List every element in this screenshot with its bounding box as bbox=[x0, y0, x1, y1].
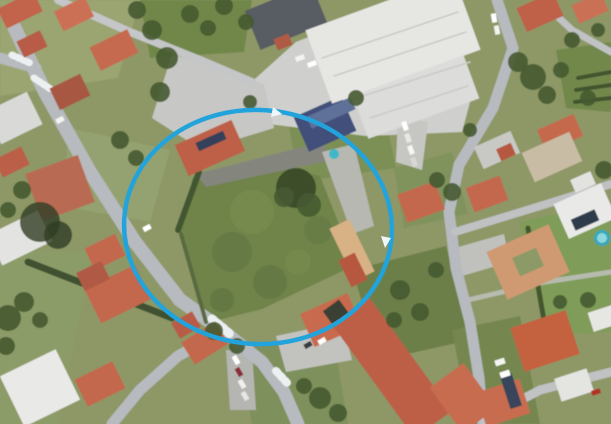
tree bbox=[429, 172, 445, 188]
tree bbox=[553, 295, 567, 309]
tree bbox=[0, 202, 16, 218]
imagery-layer bbox=[0, 0, 611, 424]
tree bbox=[13, 181, 31, 199]
tree bbox=[274, 187, 294, 207]
field-texture bbox=[285, 249, 311, 275]
tree bbox=[238, 14, 254, 30]
tree bbox=[580, 292, 596, 308]
tree bbox=[297, 193, 321, 217]
tree bbox=[390, 280, 410, 300]
tree bbox=[428, 262, 444, 278]
tree bbox=[508, 52, 528, 72]
tree bbox=[111, 131, 129, 149]
field-texture bbox=[210, 288, 234, 312]
tree bbox=[156, 47, 178, 69]
tree bbox=[142, 20, 162, 40]
tree bbox=[411, 303, 429, 321]
satellite-canvas bbox=[0, 0, 611, 424]
field-texture bbox=[212, 232, 252, 272]
tree bbox=[309, 387, 331, 409]
tree bbox=[329, 404, 347, 422]
tree bbox=[32, 312, 48, 328]
tree bbox=[150, 82, 170, 102]
tree bbox=[443, 183, 461, 201]
field-texture bbox=[230, 190, 274, 234]
tree bbox=[553, 62, 569, 78]
field-texture bbox=[304, 216, 332, 244]
pool bbox=[329, 149, 339, 159]
tree bbox=[580, 90, 596, 106]
tree bbox=[181, 5, 199, 23]
tree bbox=[243, 95, 257, 109]
tree bbox=[296, 378, 312, 394]
tree bbox=[348, 90, 364, 106]
pool-water bbox=[597, 233, 607, 243]
tree bbox=[44, 221, 72, 249]
tree bbox=[591, 23, 605, 37]
tree bbox=[386, 312, 402, 328]
field-texture bbox=[253, 265, 287, 299]
tree bbox=[128, 1, 146, 19]
tree bbox=[14, 292, 34, 312]
tree bbox=[463, 123, 477, 137]
satellite-map-view bbox=[0, 0, 611, 424]
tree bbox=[564, 32, 580, 48]
tree bbox=[200, 20, 216, 36]
tree bbox=[538, 86, 556, 104]
